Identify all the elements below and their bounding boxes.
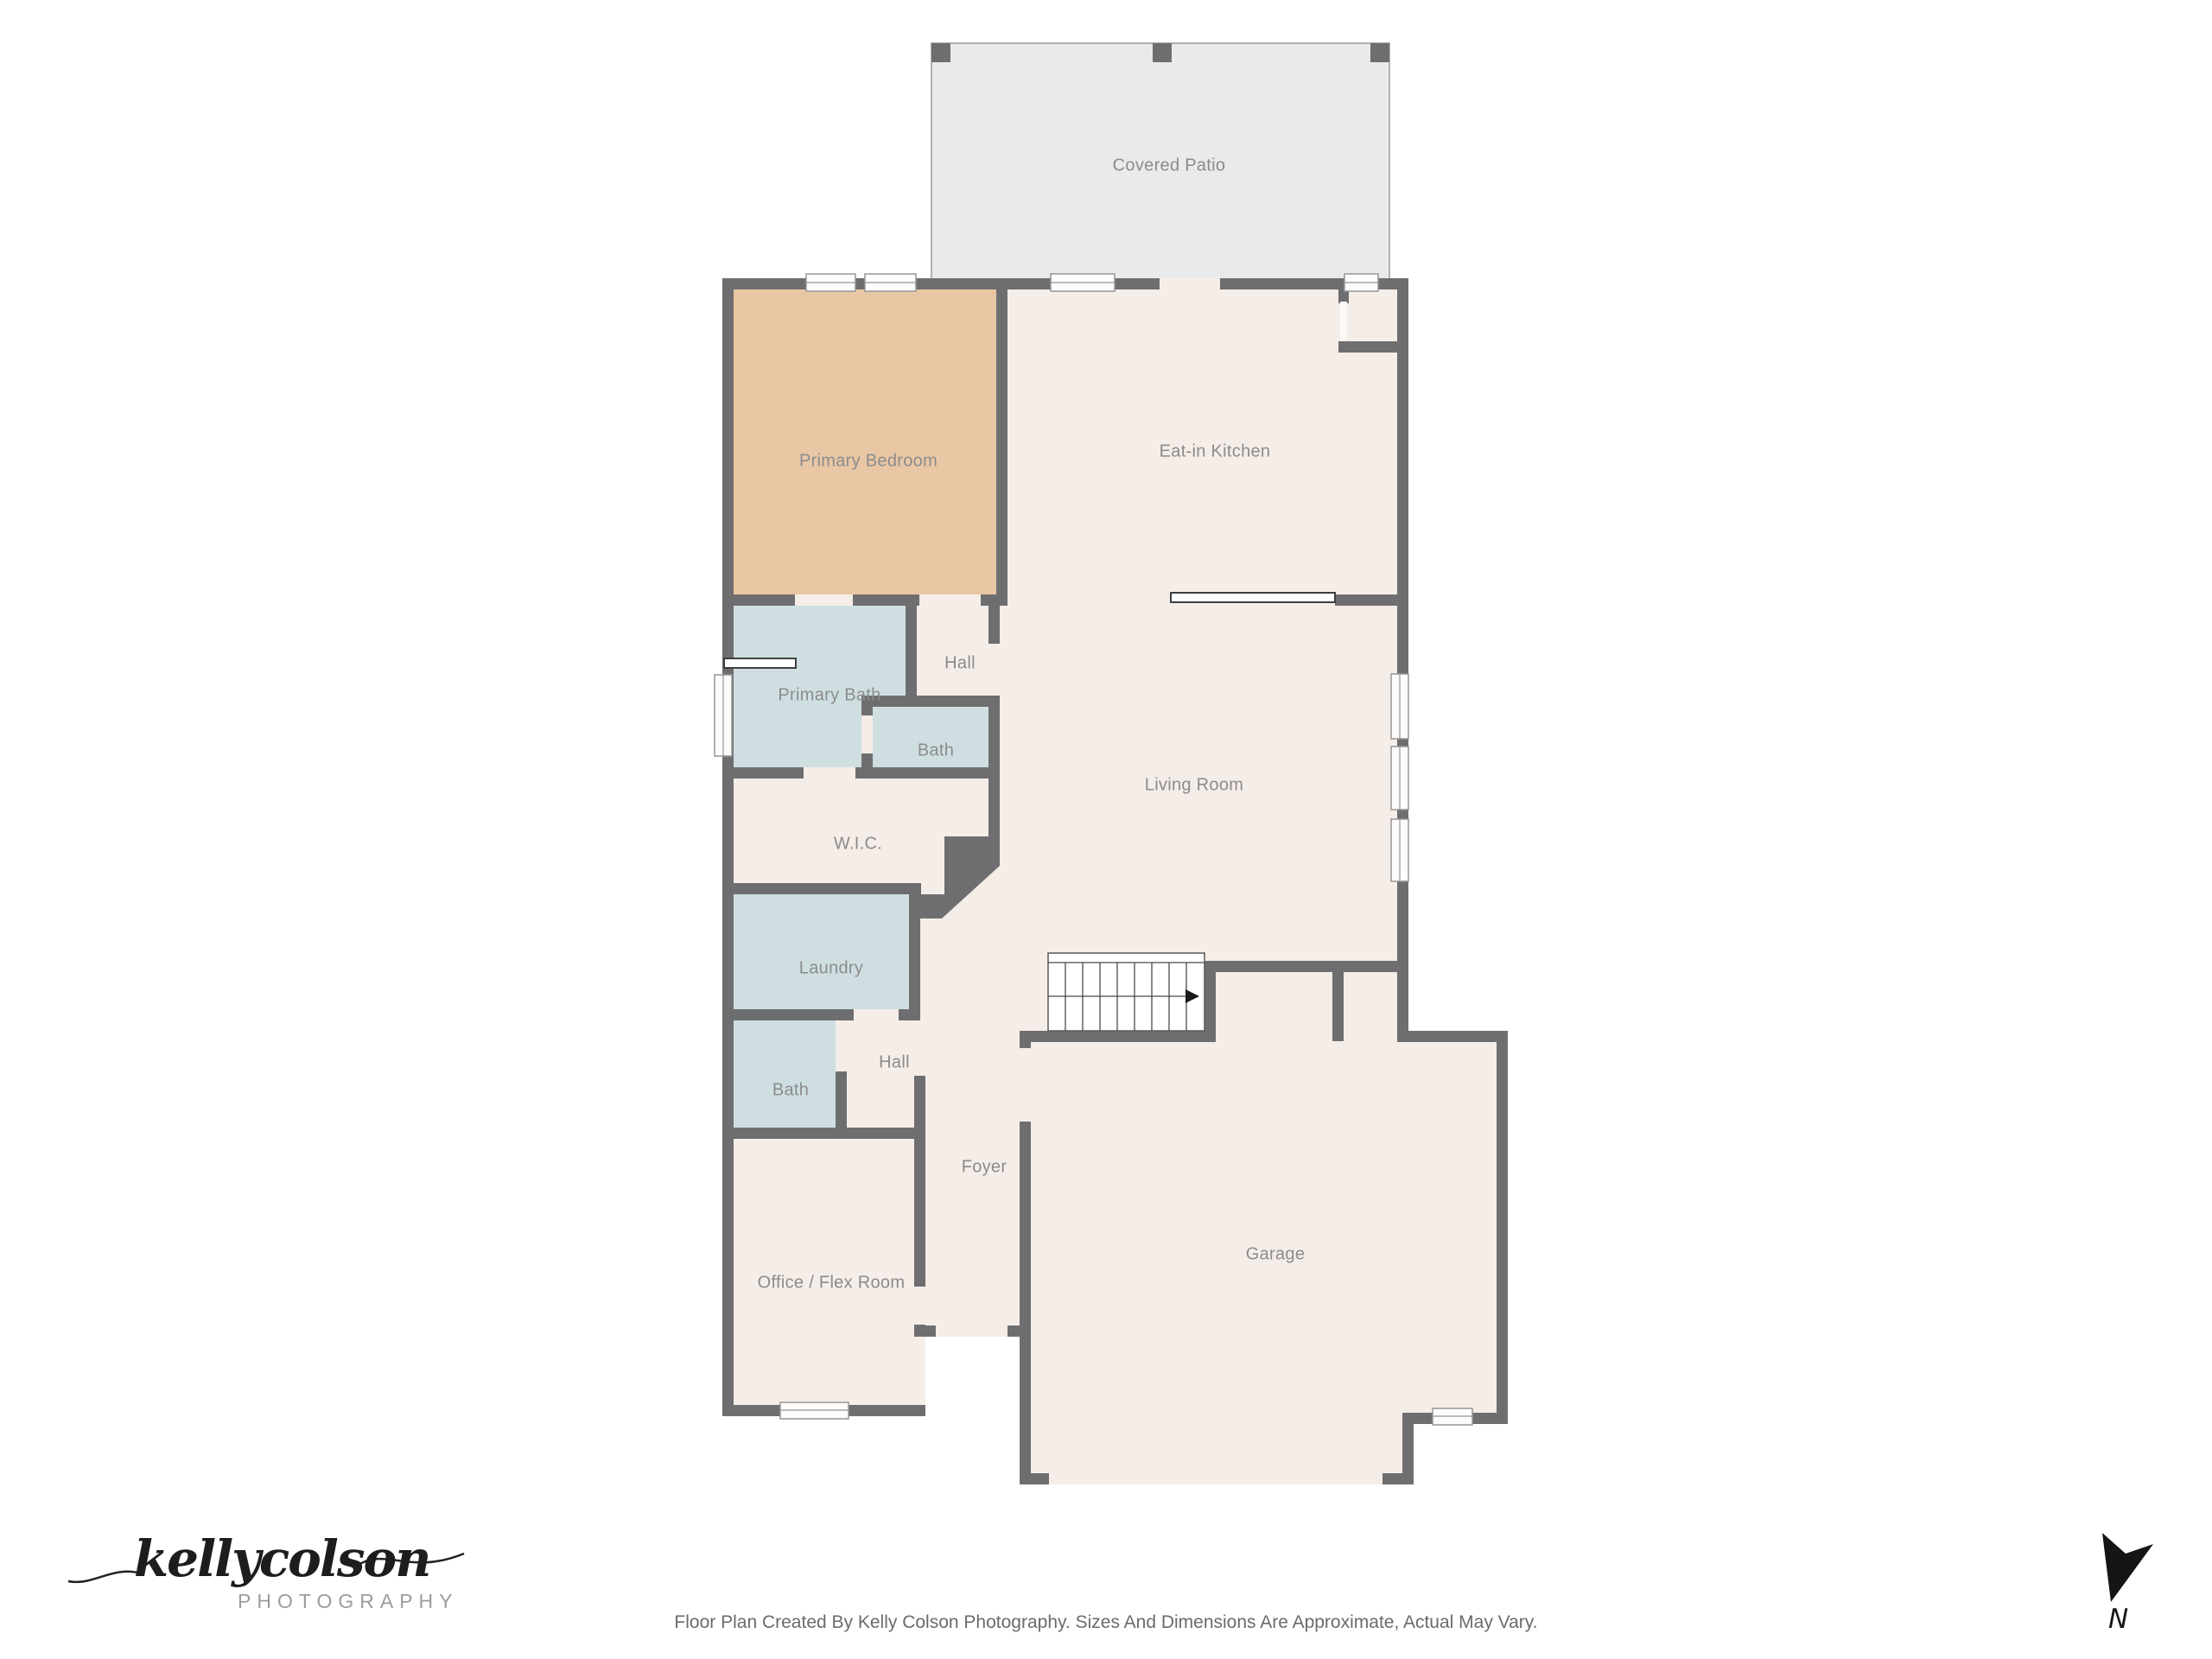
room-label-covered-patio: Covered Patio: [1113, 156, 1226, 176]
room-label-bath: Bath: [918, 741, 954, 761]
staircase: [1048, 953, 1205, 1031]
bath-vanity-counter: [724, 658, 796, 668]
window: [1051, 274, 1115, 291]
room-label-bath: Bath: [772, 1081, 809, 1101]
patio-post: [1370, 43, 1389, 62]
room-label-primary-bedroom: Primary Bedroom: [799, 452, 938, 472]
room-label-hall: Hall: [944, 654, 976, 674]
north-compass: N: [2088, 1517, 2174, 1647]
lower-bath-floor: [734, 1020, 836, 1128]
room-label-w-i-c: W.I.C.: [834, 835, 882, 855]
floor-plan-drawing: [0, 0, 2212, 1659]
floor-plan-page: Covered PatioPrimary BedroomEat-in Kitch…: [0, 0, 2212, 1659]
room-label-laundry: Laundry: [799, 959, 863, 979]
window: [806, 274, 855, 291]
north-label: N: [2108, 1604, 2128, 1635]
disclaimer-text: Floor Plan Created By Kelly Colson Photo…: [0, 1612, 2212, 1633]
room-label-hall: Hall: [879, 1053, 910, 1073]
room-label-foyer: Foyer: [962, 1158, 1007, 1178]
north-arrow-icon: [2088, 1517, 2174, 1604]
logo-subtitle-text: PHOTOGRAPHY: [238, 1590, 459, 1613]
room-label-garage: Garage: [1246, 1245, 1306, 1265]
garage-door-opening: [1049, 1473, 1382, 1484]
room-label-living-room: Living Room: [1145, 776, 1243, 796]
kitchen-counter: [1171, 593, 1335, 602]
room-label-eat-in-kitchen: Eat-in Kitchen: [1160, 442, 1271, 462]
window: [1391, 674, 1408, 739]
room-label-primary-bath: Primary Bath: [778, 686, 880, 706]
room-label-office-flex-room: Office / Flex Room: [758, 1274, 906, 1294]
window: [780, 1402, 849, 1419]
window: [865, 274, 916, 291]
window: [715, 675, 732, 756]
patio-post: [931, 43, 950, 62]
window: [1344, 274, 1378, 291]
laundry-floor: [734, 894, 909, 1009]
window: [1391, 819, 1408, 881]
patio-post: [1153, 43, 1172, 62]
pantry-door-gap: [1340, 302, 1347, 340]
primary-bedroom-floor: [734, 289, 996, 594]
window: [1433, 1408, 1472, 1425]
window: [1391, 747, 1408, 810]
logo-script-text: kellycolson: [134, 1529, 429, 1588]
